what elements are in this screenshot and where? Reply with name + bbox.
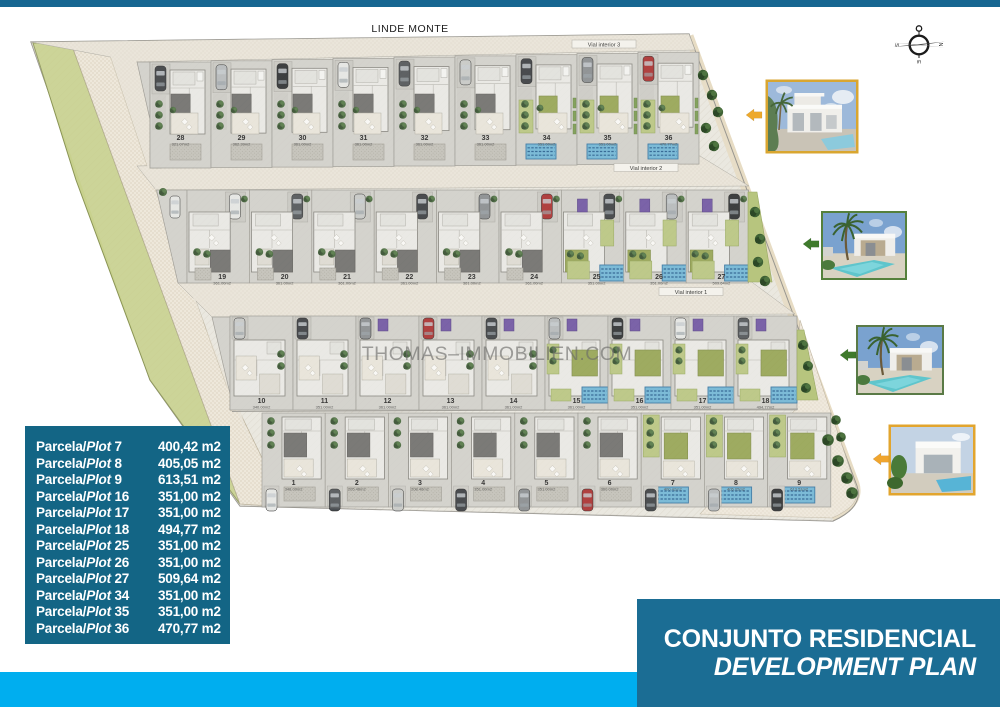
svg-text:351.00m2: 351.00m2 [650,281,669,286]
svg-text:351.00m2: 351.00m2 [631,405,650,410]
svg-text:Vial interior 3: Vial interior 3 [588,42,621,48]
svg-text:361.00m2: 361.00m2 [355,142,374,147]
svg-text:361.00m2: 361.00m2 [568,405,587,410]
svg-text:361.00m2: 361.00m2 [442,405,461,410]
svg-text:N: N [937,43,943,47]
svg-text:361.00m2: 361.00m2 [463,281,482,286]
svg-text:351.00m2: 351.00m2 [599,142,618,147]
svg-text:362.39m2: 362.39m2 [233,142,252,147]
svg-text:Vial interior 2: Vial interior 2 [630,166,663,172]
svg-text:S: S [893,43,899,47]
svg-text:205.46m2: 205.46m2 [348,487,367,492]
svg-text:361.00m2: 361.00m2 [505,405,524,410]
svg-text:351.00m2: 351.00m2 [316,405,335,410]
svg-text:361.00m2: 361.00m2 [294,142,313,147]
svg-text:361.00m2: 361.00m2 [213,281,232,286]
svg-text:351.00m2: 351.00m2 [538,142,557,147]
svg-text:361.00m2: 361.00m2 [379,405,398,410]
svg-text:351.00m2: 351.00m2 [538,487,557,492]
svg-text:470.77m2: 470.77m2 [660,142,679,147]
svg-text:THOMAS–IMMOBILIEN.COM: THOMAS–IMMOBILIEN.COM [362,343,633,365]
svg-text:361.00m2: 361.00m2 [525,281,544,286]
svg-text:361.00m2: 361.00m2 [401,281,420,286]
svg-text:509.64m2: 509.64m2 [713,281,732,286]
svg-text:E: E [915,60,921,64]
svg-text:361.00m2: 361.00m2 [477,142,496,147]
svg-text:Vial interior 1: Vial interior 1 [675,290,708,296]
svg-text:321.07m2: 321.07m2 [172,142,191,147]
svg-text:208.46m2: 208.46m2 [411,487,430,492]
svg-text:613.51m2: 613.51m2 [790,487,809,492]
svg-text:400.42m2: 400.42m2 [664,487,683,492]
svg-text:361.00m2: 361.00m2 [276,281,295,286]
svg-text:360.00m2: 360.00m2 [601,487,620,492]
svg-text:405.05m2: 405.05m2 [727,487,746,492]
svg-text:340.00m2: 340.00m2 [253,405,272,410]
svg-text:348.00m2: 348.00m2 [285,487,304,492]
svg-text:361.00m2: 361.00m2 [338,281,357,286]
svg-text:351.00m2: 351.00m2 [694,405,713,410]
svg-text:351.00m2: 351.00m2 [588,281,607,286]
svg-text:361.00m2: 361.00m2 [416,142,435,147]
svg-text:351.00m2: 351.00m2 [474,487,493,492]
